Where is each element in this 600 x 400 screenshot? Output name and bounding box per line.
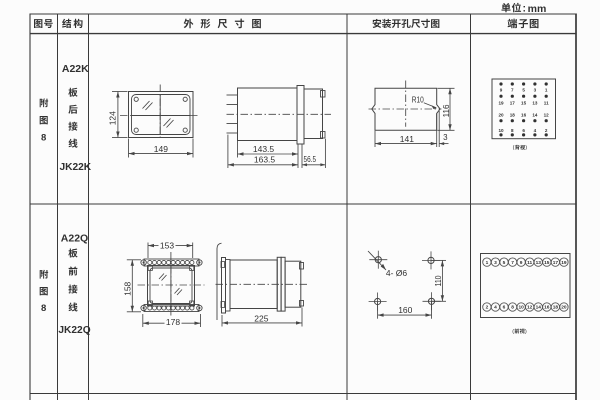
svg-text:163.5: 163.5: [254, 154, 276, 164]
svg-text:15: 15: [521, 101, 527, 106]
svg-text:225: 225: [254, 314, 268, 324]
svg-text:20: 20: [498, 113, 504, 118]
svg-text:3: 3: [494, 260, 497, 266]
svg-text:143.5: 143.5: [253, 144, 275, 154]
svg-text:5: 5: [522, 88, 525, 93]
svg-text:1: 1: [486, 260, 489, 266]
svg-text:153: 153: [160, 240, 174, 250]
svg-text:12: 12: [527, 305, 533, 311]
svg-text:7: 7: [511, 260, 514, 266]
svg-text:2: 2: [486, 305, 489, 311]
svg-text:(: (: [512, 329, 514, 335]
svg-text:11: 11: [527, 260, 532, 266]
svg-text:15: 15: [544, 260, 550, 266]
svg-text:13: 13: [536, 260, 542, 266]
svg-text:2: 2: [545, 128, 548, 133]
svg-text:): ): [525, 329, 527, 335]
svg-text:3: 3: [443, 133, 448, 142]
svg-text:8: 8: [41, 303, 46, 314]
svg-text:4: 4: [494, 305, 497, 311]
svg-text:16: 16: [544, 305, 550, 311]
svg-text:(: (: [513, 145, 515, 151]
svg-text:16: 16: [521, 113, 527, 118]
svg-text:9: 9: [520, 260, 523, 266]
svg-text:13: 13: [532, 101, 538, 106]
svg-text:19: 19: [498, 101, 504, 106]
svg-text:10: 10: [498, 128, 504, 133]
svg-text:6: 6: [522, 128, 525, 133]
svg-text:178: 178: [166, 317, 180, 327]
svg-text:116: 116: [441, 104, 451, 117]
svg-text:17: 17: [510, 101, 516, 106]
svg-text::: :: [522, 2, 526, 14]
svg-text:6: 6: [503, 305, 506, 311]
svg-text:8: 8: [511, 128, 514, 133]
svg-text:R10: R10: [412, 95, 424, 105]
svg-text:10: 10: [518, 305, 524, 311]
svg-text:18: 18: [510, 113, 516, 118]
svg-text:JK22K: JK22K: [59, 162, 91, 173]
svg-text:141: 141: [400, 134, 414, 144]
svg-text:12: 12: [544, 113, 550, 118]
svg-text:4- Ø6: 4- Ø6: [386, 268, 408, 278]
svg-text:mm: mm: [528, 3, 547, 15]
svg-text:9: 9: [500, 88, 503, 93]
svg-text:A22K: A22K: [62, 63, 89, 75]
svg-text:124: 124: [108, 111, 118, 125]
svg-text:1: 1: [545, 88, 548, 93]
svg-text:149: 149: [154, 144, 168, 154]
svg-text:158: 158: [123, 281, 133, 295]
svg-text:18: 18: [553, 305, 559, 311]
svg-text:7: 7: [511, 88, 514, 93]
svg-text:5: 5: [503, 260, 506, 266]
svg-text:JK22Q: JK22Q: [58, 325, 90, 336]
svg-text:17: 17: [553, 260, 559, 266]
svg-text:160: 160: [398, 305, 412, 315]
svg-text:4: 4: [534, 128, 537, 133]
svg-text:20: 20: [561, 305, 567, 311]
svg-text:19: 19: [561, 260, 567, 266]
svg-text:8: 8: [41, 133, 46, 144]
svg-text:14: 14: [532, 113, 538, 118]
svg-text:A22Q: A22Q: [61, 233, 88, 245]
svg-text:): ): [525, 145, 527, 151]
svg-text:3: 3: [534, 88, 537, 93]
svg-text:110: 110: [433, 275, 443, 286]
svg-text:11: 11: [544, 101, 549, 106]
svg-text:8: 8: [511, 305, 514, 311]
svg-text:14: 14: [536, 305, 542, 311]
svg-text:56.5: 56.5: [304, 154, 317, 164]
